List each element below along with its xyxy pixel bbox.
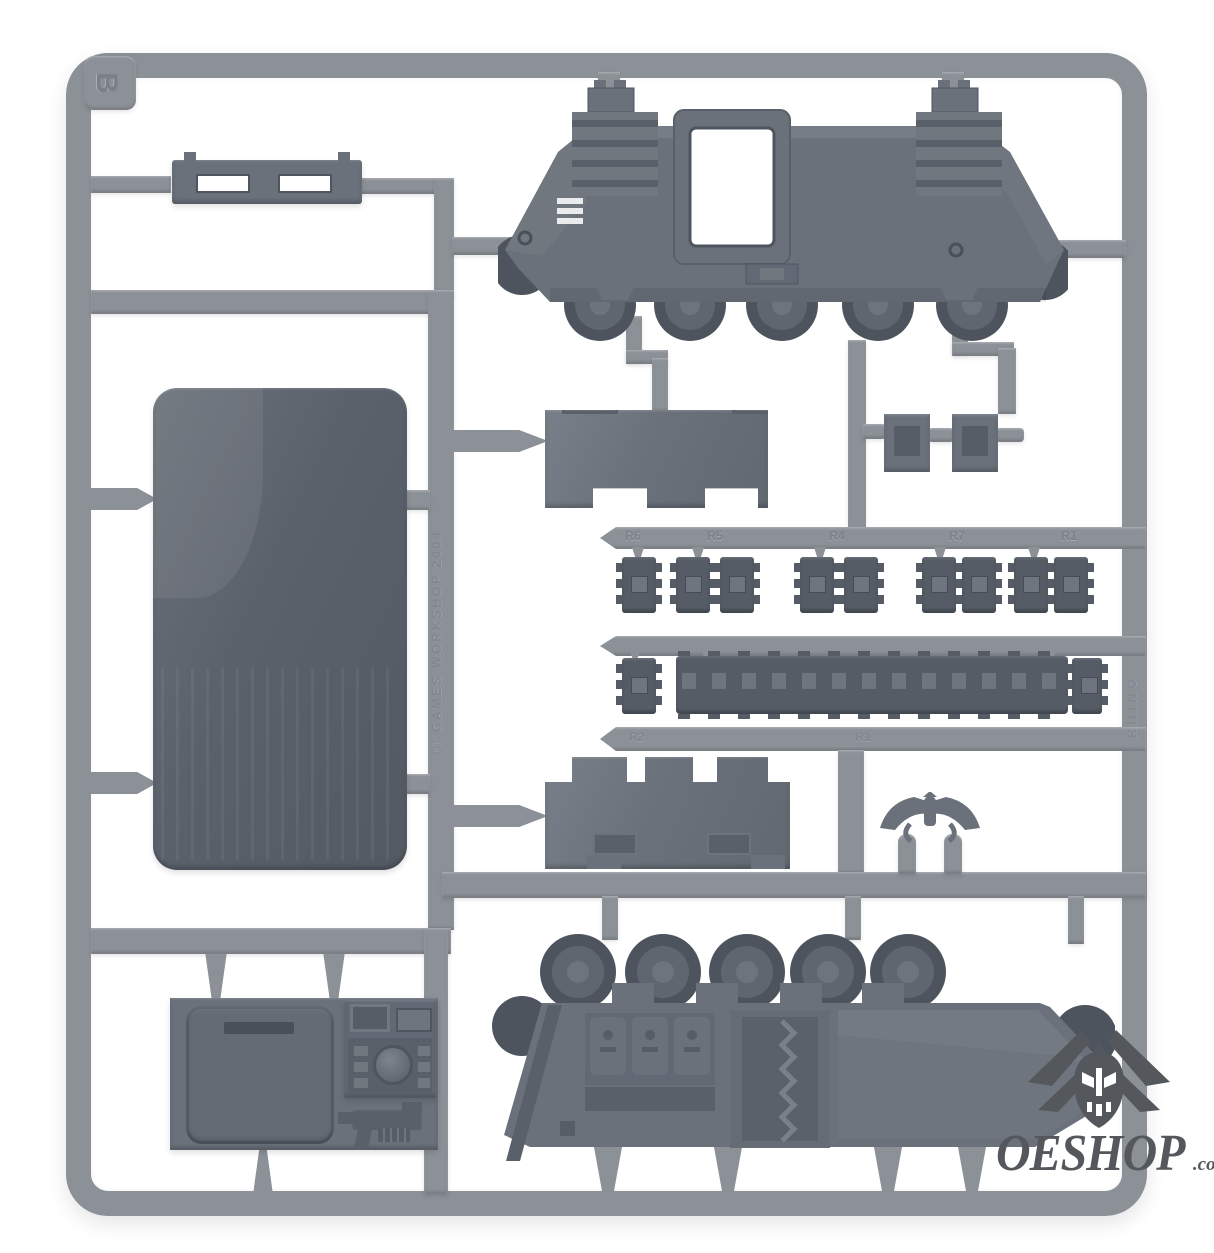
console-body	[348, 1038, 432, 1094]
frame-letter: B	[89, 72, 123, 94]
panel-ribbing	[161, 668, 399, 860]
panel-foot	[587, 855, 621, 871]
runner	[91, 928, 451, 954]
runner	[91, 176, 171, 193]
sprue-product-photo: B © GAMES WORKSHOP 2004 RHINO R6 R5 R4 R…	[0, 0, 1214, 1253]
runner	[652, 358, 668, 412]
watermark-wordmark: OESHOP .co.uk	[996, 1124, 1214, 1183]
part-number-label: R2	[620, 730, 654, 744]
runner	[442, 872, 1146, 898]
track-link	[844, 557, 878, 613]
panel-foot	[751, 855, 785, 871]
track-link	[720, 557, 754, 613]
runner	[996, 428, 1024, 442]
runner	[91, 290, 431, 314]
sprue-gate	[404, 490, 430, 510]
mounting-bracket	[952, 414, 998, 472]
bolter-sight	[402, 1102, 422, 1112]
seat-details	[590, 1017, 710, 1075]
part-number-label: R5	[698, 529, 732, 543]
track-link	[1072, 658, 1102, 714]
sprue-gate	[714, 1147, 742, 1191]
bolter-magazine	[378, 1128, 410, 1142]
plate-post	[184, 152, 196, 162]
emboss-mark	[560, 1121, 575, 1136]
runner	[928, 428, 954, 442]
track-run	[676, 656, 1068, 714]
sprue-gate	[874, 1147, 902, 1191]
aquila-ornament	[878, 792, 982, 848]
bolter	[336, 1100, 436, 1152]
runner	[998, 348, 1016, 414]
track-link	[676, 557, 710, 613]
runner	[434, 178, 454, 298]
plate-slot	[278, 174, 332, 193]
watermark-brand: OESHOP	[996, 1124, 1185, 1183]
track-link	[1014, 557, 1048, 613]
runner	[838, 750, 864, 874]
floor-panel	[153, 388, 407, 870]
part-number-label: R1	[1052, 529, 1086, 543]
rear-hatch-panel	[545, 757, 790, 869]
console-dial	[376, 1048, 410, 1082]
frame-code-text: RHINO	[1125, 548, 1139, 738]
frame-letter-tab: B	[84, 56, 136, 110]
control-console	[344, 1000, 436, 1098]
console-panel	[396, 1008, 432, 1032]
plate-slot	[196, 174, 250, 193]
track-link	[922, 557, 956, 613]
hull-side-outer	[498, 58, 1068, 350]
part-number-label: R4	[820, 529, 854, 543]
panel-highlight	[153, 388, 263, 598]
bolter-muzzle	[338, 1112, 354, 1124]
runner	[862, 424, 886, 439]
sprue-gate	[958, 1147, 986, 1191]
vision-slit	[224, 1022, 294, 1034]
panel-vent	[707, 833, 751, 855]
part-number-label: R6	[616, 529, 650, 543]
track-link	[622, 557, 656, 613]
panel-vent	[593, 833, 637, 855]
hatch-opening	[674, 110, 798, 284]
mounting-bracket	[884, 414, 930, 472]
console-knobs	[418, 1046, 430, 1056]
watermark-tld: .co.uk	[1193, 1154, 1214, 1176]
console-knobs	[354, 1046, 368, 1056]
towing-step-plate	[172, 160, 362, 204]
track-link	[622, 658, 656, 714]
sprue-gate	[594, 1147, 622, 1191]
watermark-helmet-icon	[1024, 1026, 1174, 1130]
track-link	[800, 557, 834, 613]
sprue-gate	[404, 774, 430, 794]
console-screen	[350, 1004, 390, 1032]
track-link	[1054, 557, 1088, 613]
part-number-label: R1	[846, 730, 880, 744]
bolter-grip	[354, 1128, 373, 1150]
part-number-label: R7	[940, 529, 974, 543]
plate-post	[338, 152, 350, 162]
track-link	[962, 557, 996, 613]
copyright-text: © GAMES WORKSHOP 2004	[430, 455, 444, 755]
hatch-door	[186, 1006, 334, 1144]
